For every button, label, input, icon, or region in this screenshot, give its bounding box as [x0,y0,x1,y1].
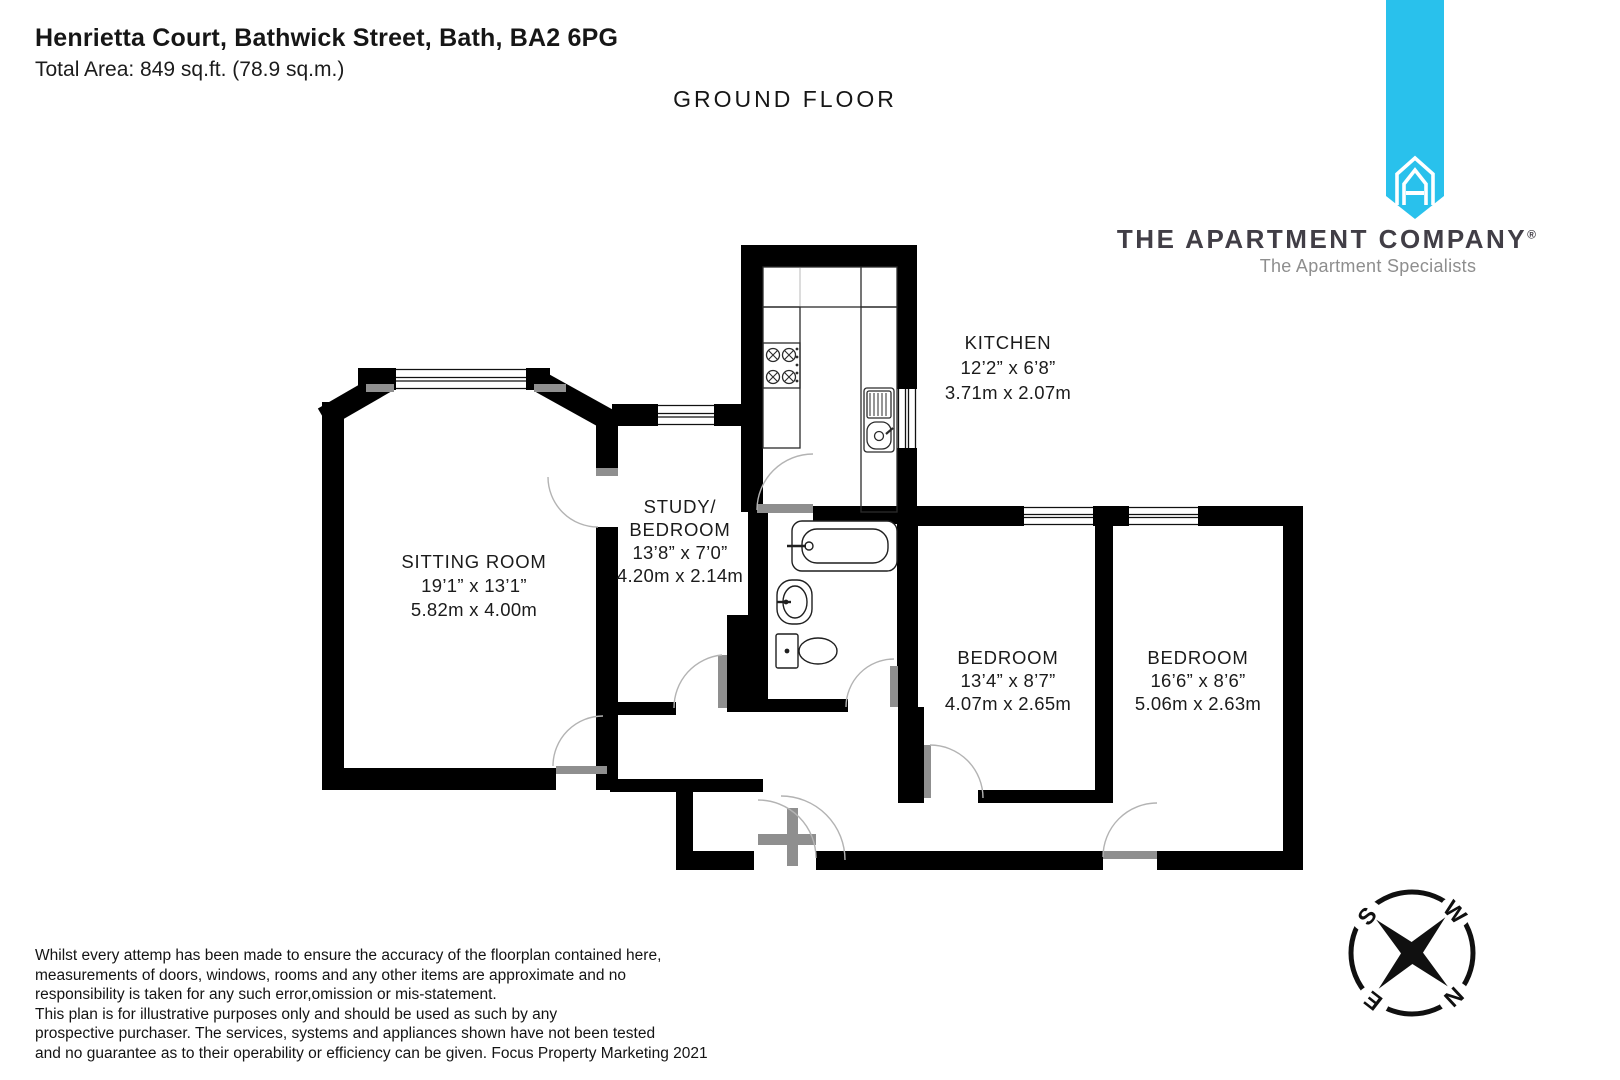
bathtub [787,521,897,571]
wall-segment [898,707,924,803]
wall-segment [727,615,768,712]
disclaimer-line: and no guarantee as to their operability… [35,1044,708,1064]
disclaimer-line: measurements of doors, windows, rooms an… [35,966,708,986]
wall-segment [816,851,1103,870]
registered-mark: ® [1527,227,1536,241]
floorplan-graphic: S W E N [0,0,1620,1080]
stove-hob [763,343,800,388]
toilet [776,634,837,668]
kitchen-counter [763,307,800,448]
room-label-sitting-room: SITTING ROOM 19’1” x 13’1” 5.82m x 4.00m [346,550,602,622]
door-arc-sitting-room [553,716,603,766]
brand-name: THE APARTMENT COMPANY® [1040,224,1536,255]
door-leaf-bathroom [890,666,898,707]
wall-segment [322,402,344,790]
window-tick [366,384,394,392]
bathroom-fixtures [776,521,897,668]
wall-segment [714,404,744,426]
wall-segment [741,245,917,267]
window-bedroom-middle [1024,506,1093,526]
wall-segment [676,851,754,870]
kitchen-counter [763,267,897,307]
door-leaf-bedroom-middle [924,745,931,798]
compass: S W E N [1351,892,1473,1017]
property-address: Henrietta Court, Bathwick Street, Bath, … [35,24,618,53]
wall-segment [322,768,556,790]
window-sitting-room [396,368,526,390]
wall-segment [1157,851,1303,870]
window-bedroom-right [1129,506,1198,526]
wall-segment [610,779,763,792]
wall-segment [917,506,1024,526]
brand-ribbon [1386,0,1444,219]
disclaimer-line: Whilst every attemp has been made to ens… [35,946,708,966]
kitchen-sink [864,388,894,452]
door-arc-bedroom-right [1103,803,1157,857]
room-label-study-bedroom: STUDY/ BEDROOM 13’8” x 7’0” 4.20m x 2.14… [570,495,790,587]
disclaimer: Whilst every attemp has been made to ens… [35,946,708,1063]
compass-star [1376,917,1448,989]
wall-segment [768,699,848,712]
wall-segment [978,790,1095,803]
door-threshold-bedroom-right [1103,851,1157,859]
total-area: Total Area: 849 sq.ft. (78.9 sq.m.) [35,58,344,82]
front-door-cross [758,834,816,845]
wall-segment [612,404,658,426]
door-leaf-study [718,655,727,708]
room-label-bedroom-middle: BEDROOM 13’4” x 8’7” 4.07m x 2.65m [898,646,1118,715]
wall-segment [610,702,676,715]
kitchen-fixtures [763,267,897,512]
brand-tagline: The Apartment Specialists [1120,256,1616,277]
door-arc-bathroom [846,659,894,707]
wall-segment [1093,506,1129,526]
door-arc-study-hall [674,655,722,708]
room-label-bedroom-right: BEDROOM 16’6” x 8’6” 5.06m x 2.63m [1088,646,1308,715]
window-tick [534,384,566,392]
door-jamb-sitting-room [556,766,607,774]
disclaimer-line: prospective purchaser. The services, sys… [35,1024,708,1044]
wall-segment [741,245,763,512]
room-label-kitchen: KITCHEN 12’2” x 6’8” 3.71m x 2.07m [898,330,1118,405]
window-study [658,404,714,426]
disclaimer-line: This plan is for illustrative purposes o… [35,1005,708,1025]
floorplan-page: S W E N Henrietta Court, Bathwick Street… [0,0,1620,1080]
door-arc-bedroom-middle [930,745,983,798]
floor-title: GROUND FLOOR [600,86,970,113]
disclaimer-line: responsibility is taken for any such err… [35,985,708,1005]
door-jamb-study [596,468,618,476]
